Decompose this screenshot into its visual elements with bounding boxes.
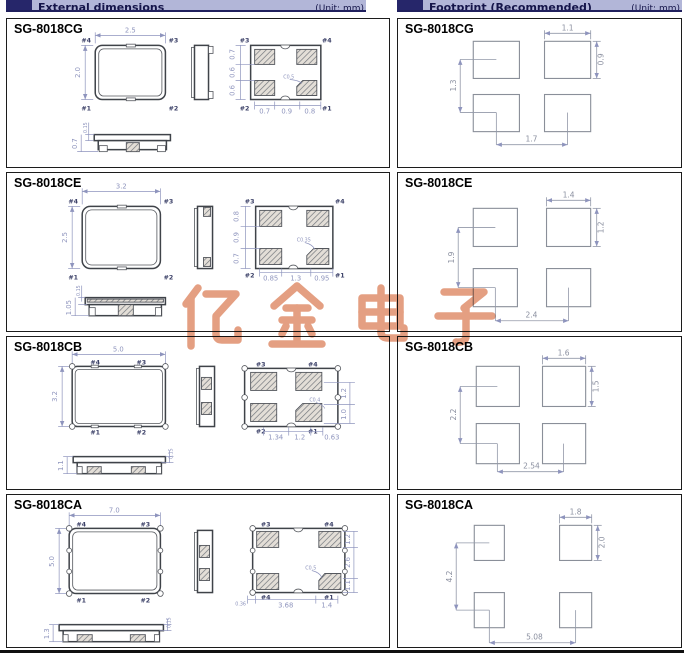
dim-label: 0.6 <box>229 67 237 78</box>
header-title: External dimensions <box>38 1 164 12</box>
pin-label: #4 <box>76 521 86 528</box>
cell-sg8018cg-footprint: SG-8018CG 1.1 0.9 1.3 1.7 <box>397 18 682 168</box>
footprint-pads <box>474 525 591 627</box>
dim-label: 1.3 <box>43 628 51 639</box>
header-unit: (Unit: mm) <box>315 4 366 12</box>
pin-label: #3 <box>256 361 266 368</box>
model-title: SG-8018CB <box>405 340 473 354</box>
pad-view: #3 #4 #2 #1 0.7 0.6 0.6 0.7 0.9 0.8 C0.5 <box>229 37 333 115</box>
dim-label: 0.6 <box>229 85 237 96</box>
dim-label: 1.3 <box>449 79 458 91</box>
sg8018ca-external-drawing: 7.0 5.0 #4 #3 #1 #2 <box>7 495 389 647</box>
top-view: 7.0 5.0 #4 #3 #1 #2 <box>48 506 163 604</box>
pin-label: #3 <box>240 37 250 44</box>
pin-label: #4 <box>261 595 271 602</box>
dim-label: 2.0 <box>74 67 82 78</box>
pin-label: #4 <box>81 37 91 44</box>
footprint-pads <box>476 366 585 463</box>
model-title: SG-8018CB <box>14 340 82 354</box>
model-title: SG-8018CG <box>14 22 83 36</box>
footprint-pads <box>473 208 590 306</box>
profile-view: 0.15 1.05 <box>65 285 165 315</box>
chamfer-label: C0.4 <box>309 397 320 403</box>
pin-label: #3 <box>137 359 147 366</box>
page-bottom-rule <box>0 650 684 653</box>
side-view <box>196 366 214 426</box>
dim-label: 0.7 <box>233 253 241 264</box>
dim-label: 0.15 <box>168 448 174 459</box>
dim-label: 2.0 <box>598 536 607 548</box>
dim-label: 1.2 <box>344 534 352 545</box>
dim-label: 3.68 <box>278 602 293 610</box>
cell-sg8018cg-external: SG-8018CG 2.5 2.0 #4 #3 #1 #2 <box>6 18 390 168</box>
dim-label: 0.15 <box>76 285 82 296</box>
pin-label: #1 <box>335 273 345 280</box>
pin-label: #3 <box>164 198 174 205</box>
dim-label: 1.9 <box>447 251 456 263</box>
dim-label: 1.4 <box>321 602 332 610</box>
pin-label: #1 <box>76 598 86 605</box>
dim-label: 1.0 <box>340 409 348 420</box>
dim-label: 1.5 <box>592 380 601 392</box>
dim-label: 1.2 <box>597 221 606 233</box>
profile-view: 0.15 0.7 <box>71 122 170 151</box>
profile-view: 1.3 0.15 <box>43 617 172 641</box>
dim-label: 1.8 <box>570 507 582 516</box>
pin-label: #2 <box>141 598 151 605</box>
dim-label: 1.1 <box>344 580 352 591</box>
dim-label: 2.5 <box>61 232 69 243</box>
header-unit: (Unit: mm) <box>631 4 682 12</box>
dim-label: 0.8 <box>233 211 241 222</box>
pin-label: #1 <box>68 275 78 282</box>
dim-label: 0.15 <box>83 122 89 133</box>
chamfer-label: C0.5 <box>305 565 316 571</box>
top-view: 2.5 2.0 #4 #3 #1 #2 <box>74 26 178 112</box>
datasheet-page: External dimensions (Unit: mm) Footprint… <box>0 0 684 654</box>
sg8018cg-external-drawing: 2.5 2.0 #4 #3 #1 #2 <box>7 19 389 167</box>
top-view: 3.2 2.5 #4 #3 #1 #2 <box>61 182 173 281</box>
dim-label: 2.5 <box>125 26 136 34</box>
dim-label: 0.36 <box>235 602 246 608</box>
model-title: SG-8018CA <box>14 498 82 512</box>
dim-label: 1.05 <box>65 300 73 315</box>
dim-label: 0.7 <box>229 49 237 60</box>
sg8018cb-external-drawing: 5.0 3.2 #4 #3 #1 #2 <box>7 337 389 489</box>
pin-label: #3 <box>245 198 255 205</box>
sg8018cb-footprint-drawing: 1.6 1.5 2.2 2.54 <box>398 337 681 489</box>
sg8018ce-external-drawing: 3.2 2.5 #4 #3 #1 #2 <box>7 173 389 331</box>
dim-label: 0.8 <box>304 108 315 116</box>
sg8018cg-footprint-drawing: 1.1 0.9 1.3 1.7 <box>398 19 681 167</box>
dim-label: 2.4 <box>525 311 537 320</box>
dim-label: 1.1 <box>562 23 574 32</box>
model-title: SG-8018CE <box>14 176 81 190</box>
model-title: SG-8018CG <box>405 22 474 36</box>
dim-label: 1.3 <box>290 275 301 283</box>
profile-view: 1.1 0.15 <box>57 448 174 473</box>
dim-label: 0.7 <box>71 138 79 149</box>
dim-label: 1.34 <box>268 434 283 442</box>
pin-label: #4 <box>308 361 318 368</box>
dim-label: 5.0 <box>113 345 124 353</box>
header-external-dimensions: External dimensions (Unit: mm) <box>6 0 366 12</box>
dim-label: 0.15 <box>166 617 172 628</box>
pin-label: #1 <box>81 106 91 113</box>
header-title: Footprint (Recommended) <box>429 1 592 12</box>
cell-sg8018ca-footprint: SG-8018CA 1.8 2.0 4.2 5.08 <box>397 494 682 648</box>
pin-label: #2 <box>169 106 179 113</box>
pin-label: #2 <box>164 275 174 282</box>
dim-label: 1.6 <box>558 348 570 357</box>
pad-view: #3 #4 #2 #1 0.8 0.9 0.7 0.85 1.3 0.95 C0… <box>233 198 346 282</box>
pin-label: #1 <box>322 106 332 113</box>
side-view <box>191 45 213 99</box>
pad-view: #3 #4 #4 #1 1.2 2.6 1.1 C0.5 0.36 3.68 1… <box>235 521 358 609</box>
chamfer-label: C0.35 <box>297 237 311 243</box>
pin-label: #2 <box>245 273 255 280</box>
pin-label: #2 <box>256 429 266 436</box>
pad-view: #3 #4 #2 #1 1.2 1.0 C0.4 1.34 1.2 0.63 <box>242 361 355 441</box>
header-bullet-icon <box>6 0 32 10</box>
dim-label: 1.2 <box>340 388 348 399</box>
pin-label: #1 <box>324 595 334 602</box>
pin-label: #3 <box>169 37 179 44</box>
dim-label: 0.9 <box>233 232 241 243</box>
pin-label: #1 <box>90 430 100 437</box>
model-title: SG-8018CA <box>405 498 473 512</box>
dim-label: 2.6 <box>344 557 352 568</box>
sg8018ca-footprint-drawing: 1.8 2.0 4.2 5.08 <box>398 495 681 647</box>
pin-label: #2 <box>137 430 147 437</box>
dim-label: 0.7 <box>259 108 270 116</box>
dim-label: 5.0 <box>48 556 56 567</box>
dim-label: 4.2 <box>445 570 454 582</box>
dim-label: 0.9 <box>281 108 292 116</box>
pin-label: #2 <box>240 106 250 113</box>
side-view <box>194 206 212 268</box>
top-view: 5.0 3.2 #4 #3 #1 #2 <box>51 345 168 436</box>
model-title: SG-8018CE <box>405 176 472 190</box>
pin-label: #3 <box>261 521 271 528</box>
pin-label: #3 <box>141 521 151 528</box>
dim-label: 1.2 <box>294 434 305 442</box>
pin-label: #4 <box>335 198 345 205</box>
dim-label: 7.0 <box>109 506 120 514</box>
dim-label: 2.2 <box>449 408 458 420</box>
dim-label: 1.1 <box>57 460 65 471</box>
dim-label: 2.54 <box>523 462 540 471</box>
header-footprint: Footprint (Recommended) (Unit: mm) <box>397 0 682 12</box>
pin-label: #4 <box>324 521 334 528</box>
cell-sg8018cb-external: SG-8018CB 5.0 3.2 #4 #3 #1 #2 <box>6 336 390 490</box>
dim-label: 1.4 <box>563 190 575 199</box>
cell-sg8018cb-footprint: SG-8018CB 1.6 1.5 2.2 2.54 <box>397 336 682 490</box>
dim-label: 1.7 <box>525 135 537 144</box>
dim-label: 0.95 <box>314 275 329 283</box>
cell-sg8018ca-external: SG-8018CA 7.0 5.0 #4 #3 #1 #2 <box>6 494 390 648</box>
footprint-pads <box>473 41 590 131</box>
dim-label: 0.9 <box>597 53 606 65</box>
dim-label: 3.2 <box>51 391 59 402</box>
dim-label: 5.08 <box>526 633 543 642</box>
pin-label: #4 <box>68 198 78 205</box>
side-view <box>194 530 212 592</box>
pin-label: #1 <box>308 429 318 436</box>
header-bullet-icon <box>397 0 423 10</box>
dim-label: 3.2 <box>116 182 127 190</box>
pin-label: #4 <box>90 359 100 366</box>
cell-sg8018ce-footprint: SG-8018CE 1.4 1.2 1.9 2.4 <box>397 172 682 332</box>
sg8018ce-footprint-drawing: 1.4 1.2 1.9 2.4 <box>398 173 681 331</box>
cell-sg8018ce-external: SG-8018CE 3.2 2.5 #4 #3 #1 #2 <box>6 172 390 332</box>
pin-label: #4 <box>322 37 332 44</box>
dim-label: 0.85 <box>263 275 278 283</box>
dim-label: 0.63 <box>324 434 339 442</box>
